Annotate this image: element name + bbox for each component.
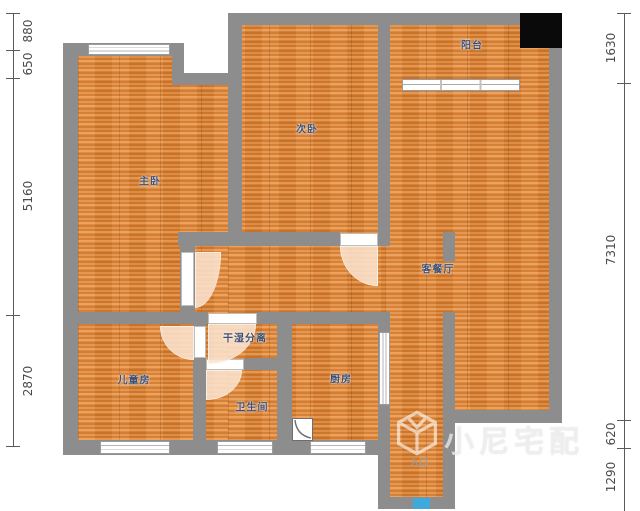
wall-living-stub [443, 232, 455, 262]
bathroom-window [217, 441, 273, 454]
dim-right-1630: 1630 [604, 33, 618, 64]
watermark-cube-logo-icon [393, 410, 441, 456]
balcony-sliding-door [402, 79, 520, 91]
wall-corridor-right [443, 312, 455, 497]
room-label-dry-wet-separation: 干湿分离 [223, 330, 267, 345]
dim-left-2870: 2870 [21, 366, 35, 397]
corner-fixture-icon [292, 418, 313, 441]
kitchen-window [310, 441, 366, 454]
wall-bath-divider [244, 358, 277, 370]
dim-right-1290: 1290 [604, 462, 618, 493]
wall-left [63, 43, 78, 455]
room-label-entrance: 入口 [410, 456, 428, 469]
children-window [100, 441, 170, 454]
wall-top [228, 13, 562, 25]
wall-master-second-divider [228, 13, 242, 246]
children-door-leaf [194, 326, 206, 358]
kitchen-sliding-door [379, 332, 390, 405]
master-door-leaf [181, 252, 194, 306]
right-dimension-line [624, 13, 625, 511]
dim-left-880: 880 [21, 20, 35, 43]
wall-bath-kitchen-divider [277, 312, 292, 440]
dim-left-5160: 5160 [21, 181, 35, 212]
wall-hall-north [178, 232, 340, 246]
room-label-second-bedroom: 次卧 [296, 121, 318, 136]
room-label-balcony: 阳台 [461, 37, 483, 52]
second-bedroom-door-leaf [340, 233, 378, 246]
room-label-bathroom: 卫生间 [236, 399, 269, 414]
master-window [88, 44, 170, 55]
room-label-children-room: 儿童房 [118, 372, 151, 387]
floor-plan: 主卧 次卧 阳台 客餐厅 干湿分离 儿童房 厨房 卫生间 入口 880 650 … [0, 0, 640, 511]
floor-entry-corridor [385, 312, 443, 497]
entry-door-marker [413, 498, 430, 509]
room-label-kitchen: 厨房 [330, 371, 352, 386]
watermark-text: 小尼宅配 [444, 417, 584, 461]
dim-right-620: 620 [604, 423, 618, 446]
room-label-living-dining: 客餐厅 [422, 261, 455, 276]
wall-right [549, 13, 562, 423]
room-label-master-bedroom: 主卧 [139, 173, 161, 188]
wall-second-living-divider [378, 13, 390, 246]
dim-left-650: 650 [21, 53, 35, 76]
drywet-door-leaf [208, 313, 257, 324]
wall-south-west [63, 312, 208, 324]
black-corner-block [520, 13, 562, 48]
dim-right-7310: 7310 [604, 235, 618, 266]
